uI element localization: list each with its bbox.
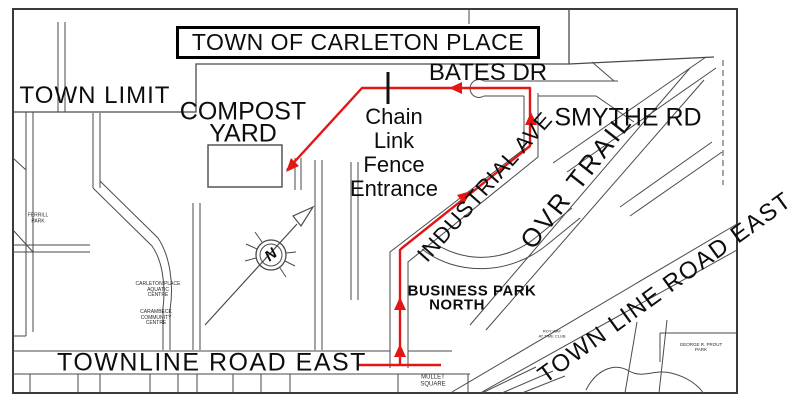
label-business-park-line2: NORTH [429, 297, 485, 314]
label-fence-entrance-line3: Fence [363, 152, 424, 178]
label-club-line2: AT TIME CLUB [538, 334, 565, 339]
map-title-box: TOWN OF CARLETON PLACE [176, 26, 540, 59]
label-fence-entrance-line4: Entrance [350, 176, 438, 202]
label-ferrill-park-line2: PARK [28, 219, 49, 225]
label-prout-park: GEORGE R. PROUT PARK [680, 342, 723, 352]
label-mullet-line2: SQUARE [420, 381, 445, 388]
map-canvas: TOWN OF CARLETON PLACE TOWN LIMIT COMPOS… [0, 0, 800, 400]
label-mullet-line1: MULLET [420, 375, 445, 382]
label-prout-line2: PARK [680, 347, 723, 352]
label-fence-entrance-line2: Link [374, 128, 414, 154]
label-carambeck-line3: CENTRE [140, 321, 172, 327]
map-title: TOWN OF CARLETON PLACE [192, 29, 524, 56]
label-carambeck-centre: CARAMBECK COMMUNITY CENTRE [140, 310, 172, 327]
label-ferrill-park: FERRILL PARK [28, 214, 49, 225]
label-mullet-square: MULLET SQUARE [420, 375, 445, 388]
label-compost-yard-line2: YARD [209, 120, 277, 149]
label-aquatic-line3: CENTRE [136, 293, 181, 299]
label-townline-road-east-bottom: TOWNLINE ROAD EAST [57, 349, 367, 378]
label-fence-entrance-line1: Chain [365, 104, 422, 130]
label-town-limit: TOWN LIMIT [20, 82, 171, 110]
label-bates-dr: BATES DR [429, 59, 547, 87]
compost-yard-rect [208, 145, 282, 187]
label-aquatic-centre: CARLETON PLACE AQUATIC CENTRE [136, 282, 181, 299]
label-club: ROY WAY AT TIME CLUB [538, 330, 565, 339]
